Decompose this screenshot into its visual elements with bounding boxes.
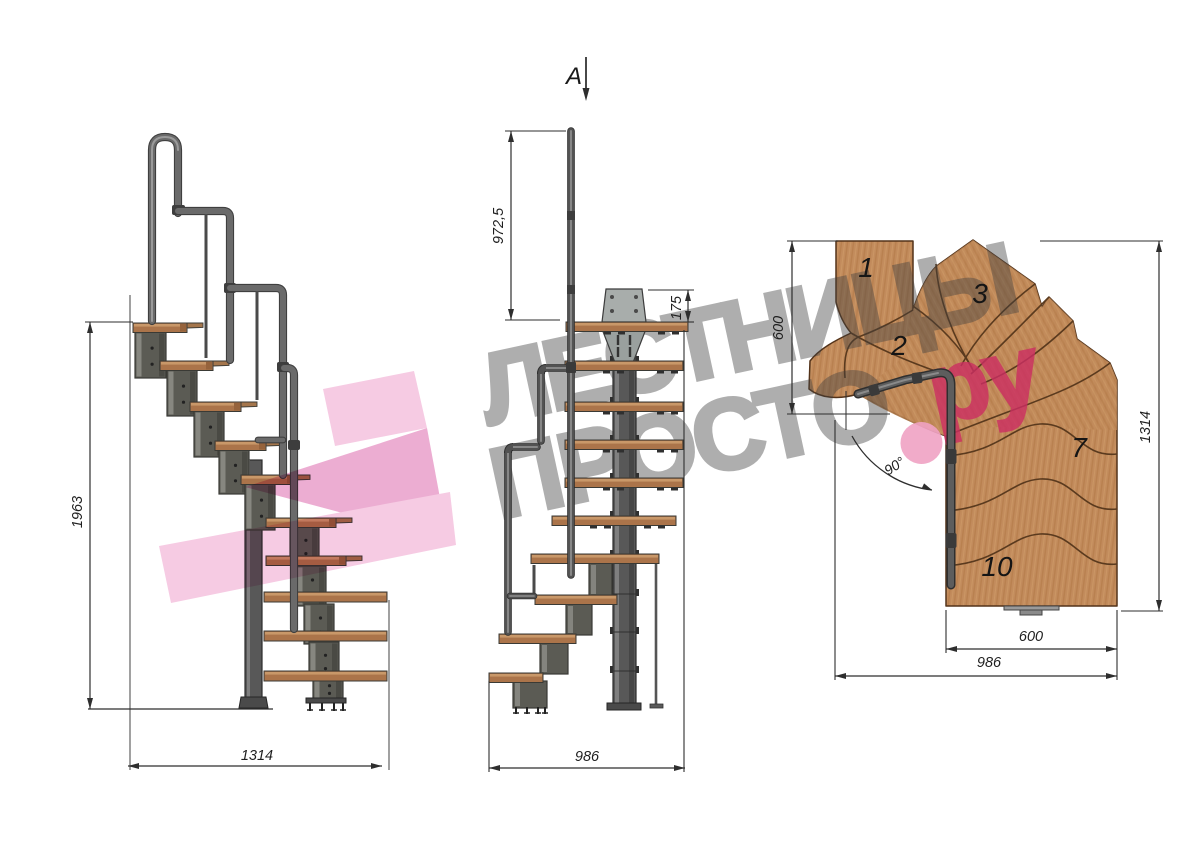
svg-text:2: 2 (890, 330, 907, 361)
svg-text:986: 986 (575, 749, 600, 765)
svg-text:10: 10 (981, 551, 1013, 582)
svg-text:3: 3 (972, 278, 988, 309)
svg-text:600: 600 (1019, 629, 1043, 645)
svg-text:1: 1 (858, 252, 874, 283)
svg-text:1963: 1963 (70, 496, 86, 528)
svg-text:A: A (564, 63, 582, 90)
svg-text:1314: 1314 (241, 748, 273, 764)
svg-text:972,5: 972,5 (491, 207, 507, 244)
svg-text:175: 175 (669, 295, 685, 320)
svg-text:1314: 1314 (1138, 411, 1154, 443)
svg-text:7: 7 (1071, 432, 1088, 463)
svg-text:986: 986 (977, 655, 1002, 671)
svg-text:600: 600 (771, 316, 787, 340)
